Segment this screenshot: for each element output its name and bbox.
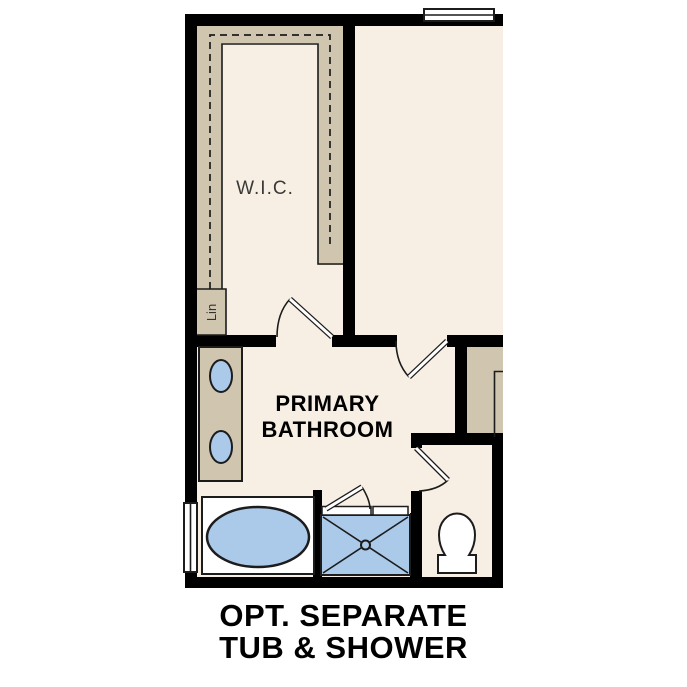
wall-bedroom-bottom bbox=[447, 335, 503, 347]
wall-bottom bbox=[185, 577, 503, 588]
wall-left bbox=[185, 14, 197, 588]
wall-tub-shower-divider bbox=[313, 490, 322, 577]
wic-shelf-right bbox=[318, 26, 343, 265]
wall-bath-top-right bbox=[332, 335, 397, 347]
wic-room-label: W.I.C. bbox=[200, 178, 330, 200]
wall-wic-bedroom-divider bbox=[343, 14, 355, 347]
primary-bathroom-label-line1: PRIMARY bbox=[240, 391, 415, 417]
wall-wc-left-lower-stub bbox=[411, 491, 422, 515]
wall-wc-top bbox=[411, 433, 503, 445]
wall-closet-left bbox=[455, 347, 467, 437]
option-caption-line1: OPT. SEPARATE bbox=[0, 600, 687, 632]
primary-bathroom-label: PRIMARY BATHROOM bbox=[240, 391, 415, 443]
option-caption-line2: TUB & SHOWER bbox=[0, 632, 687, 664]
floorplan-canvas: W.I.C. Lin PRIMARY BATHROOM OPT. SEPARAT… bbox=[0, 0, 687, 687]
primary-bathroom-label-line2: BATHROOM bbox=[240, 417, 415, 443]
wall-shower-right bbox=[410, 513, 422, 577]
wall-wc-right bbox=[492, 433, 503, 588]
wall-bath-top-left bbox=[185, 335, 276, 347]
bedroom-closet-partial bbox=[467, 347, 503, 437]
wic-shelf-left bbox=[197, 26, 222, 289]
linen-closet-label: Lin bbox=[197, 289, 226, 335]
option-caption: OPT. SEPARATE TUB & SHOWER bbox=[0, 600, 687, 664]
